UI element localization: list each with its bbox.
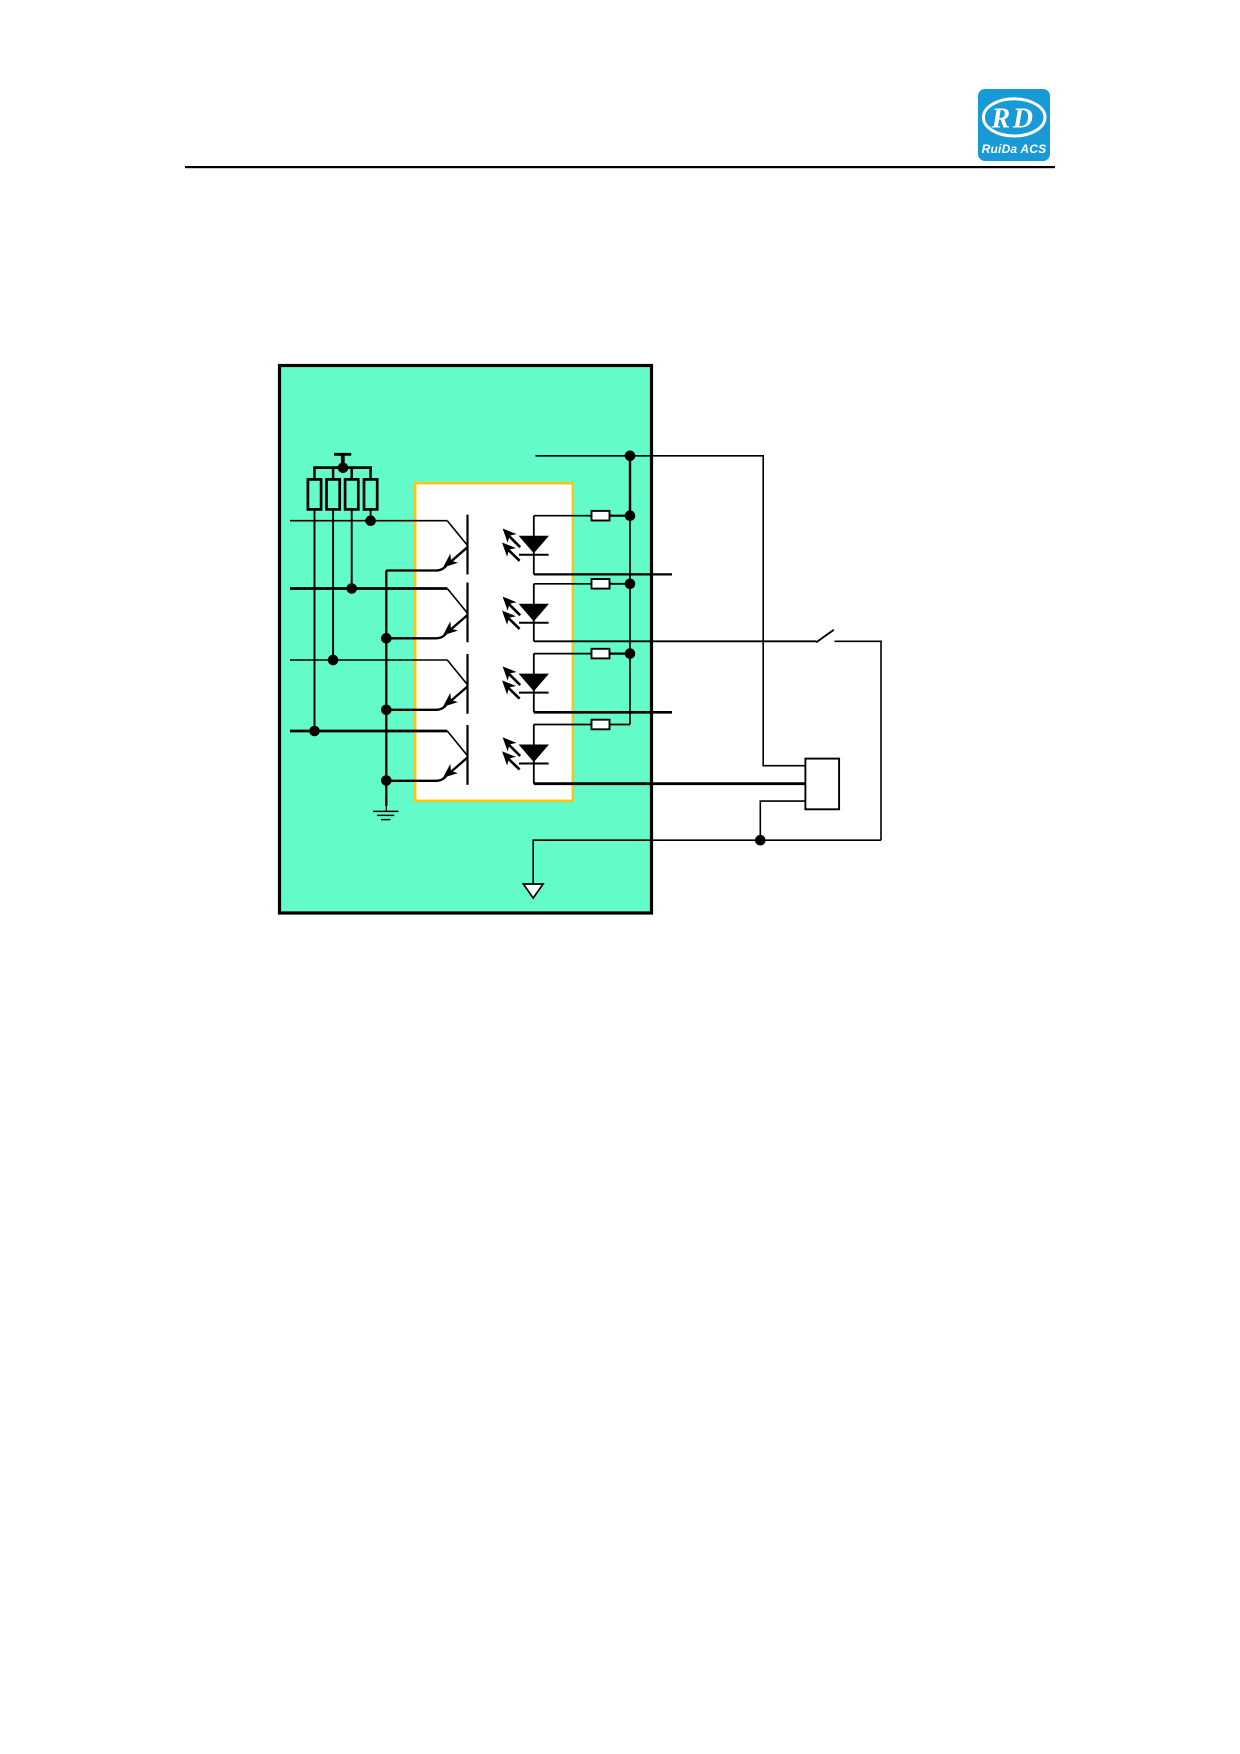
svg-text:RD: RD	[991, 104, 1036, 135]
svg-text:RuiDa ACS: RuiDa ACS	[982, 142, 1047, 156]
